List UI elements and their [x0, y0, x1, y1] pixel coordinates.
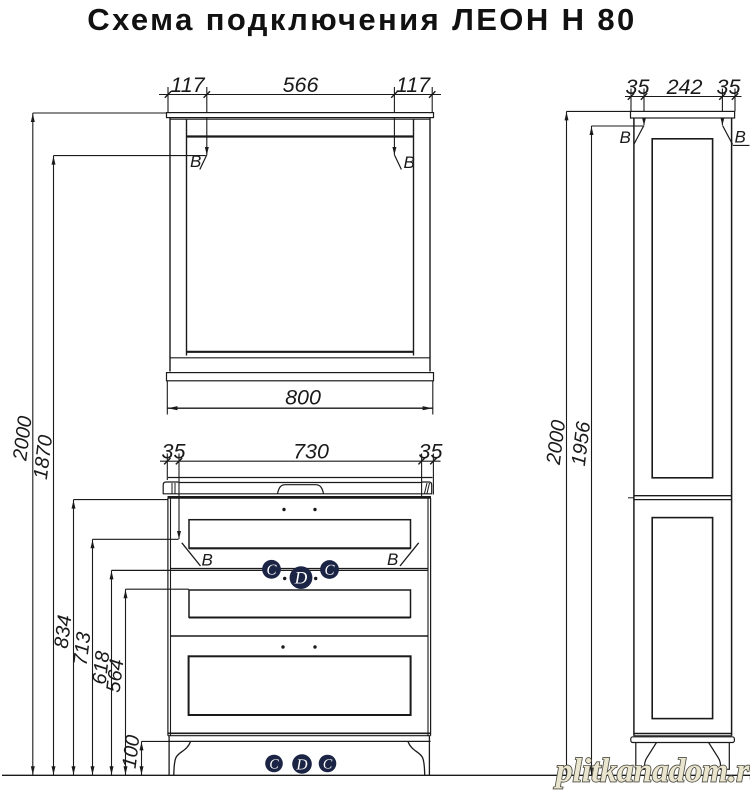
svg-text:117: 117 [170, 73, 205, 97]
svg-text:C: C [269, 757, 279, 772]
svg-text:D: D [294, 567, 308, 587]
svg-text:B: B [404, 153, 415, 172]
svg-text:35: 35 [419, 440, 444, 464]
svg-text:117: 117 [396, 73, 431, 97]
svg-text:plitkanadom.ru: plitkanadom.ru [553, 753, 750, 790]
svg-text:35: 35 [162, 440, 187, 464]
svg-text:B: B [620, 128, 631, 147]
svg-text:B: B [387, 550, 398, 569]
svg-text:C: C [266, 562, 277, 578]
svg-text:B: B [190, 152, 201, 171]
svg-text:566: 566 [283, 73, 319, 97]
svg-text:242: 242 [666, 75, 703, 99]
svg-text:C: C [323, 757, 333, 772]
svg-text:730: 730 [293, 440, 329, 464]
svg-text:100: 100 [119, 734, 145, 770]
svg-text:564: 564 [103, 658, 129, 694]
svg-text:B: B [735, 128, 746, 147]
svg-text:35: 35 [717, 75, 742, 99]
svg-text:35: 35 [626, 75, 651, 99]
svg-text:800: 800 [285, 386, 321, 410]
svg-text:D: D [295, 756, 307, 773]
svg-text:B: B [202, 551, 213, 570]
svg-text:C: C [324, 563, 335, 579]
